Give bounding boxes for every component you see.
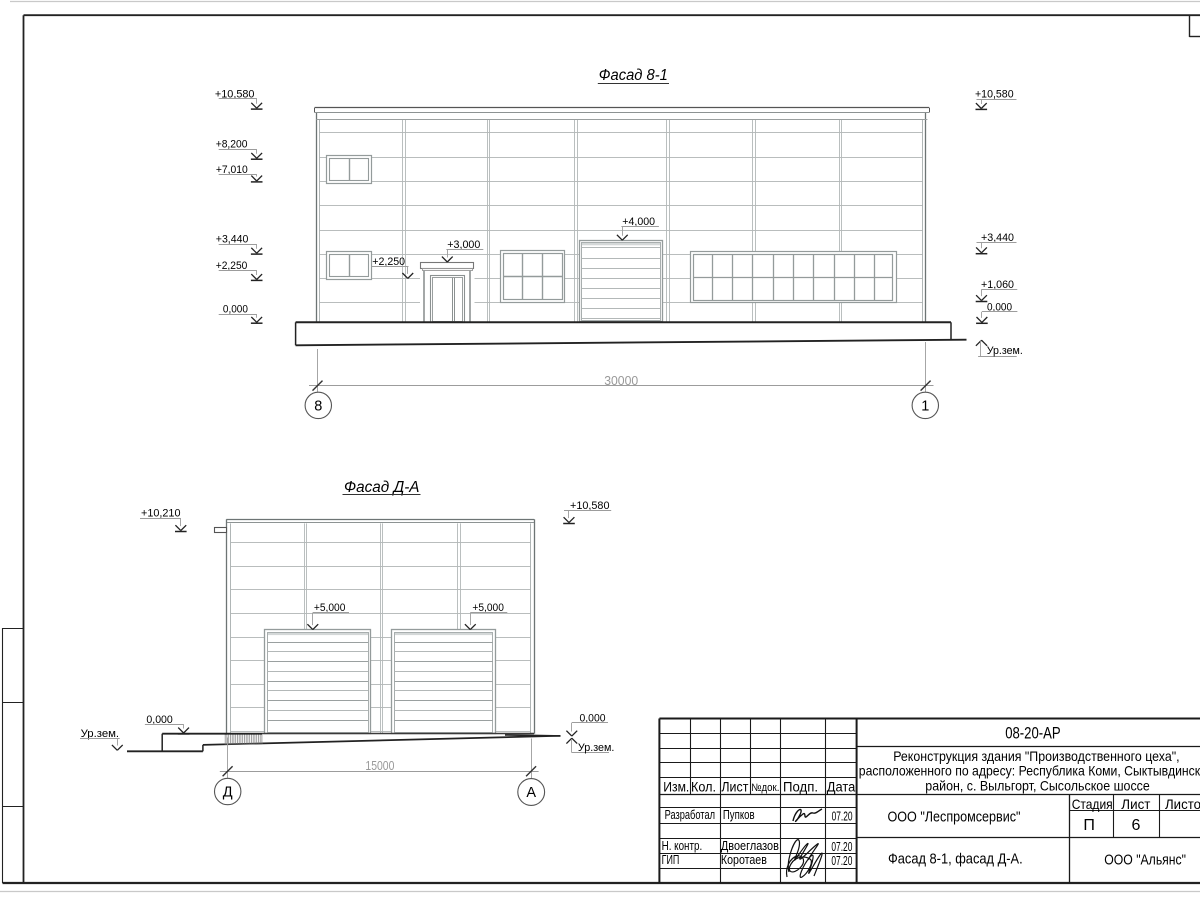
svg-text:+3,440: +3,440: [216, 234, 249, 246]
svg-text:расположенного по адресу: Респ: расположенного по адресу: Республика Ком…: [859, 763, 1200, 779]
svg-text:Стадия: Стадия: [1072, 796, 1113, 812]
svg-text:ГИП: ГИП: [662, 852, 680, 867]
svg-text:П: П: [1083, 817, 1095, 834]
svg-text:15000: 15000: [365, 759, 394, 773]
svg-text:0,000: 0,000: [223, 304, 248, 316]
svg-text:Лист: Лист: [721, 780, 748, 795]
svg-text:07.20: 07.20: [832, 808, 853, 823]
svg-text:+8,200: +8,200: [216, 139, 248, 151]
svg-text:Ур.зем.: Ур.зем.: [987, 345, 1023, 357]
svg-text:Реконструкция здания "Производ: Реконструкция здания "Производственного …: [893, 748, 1179, 764]
svg-text:1: 1: [921, 398, 929, 414]
svg-text:08-20-АР: 08-20-АР: [1005, 724, 1060, 742]
svg-text:Н. контр.: Н. контр.: [662, 838, 703, 853]
svg-text:Дата: Дата: [827, 780, 856, 795]
svg-text:Листов: Листов: [1165, 796, 1200, 812]
svg-text:Изм.: Изм.: [663, 780, 689, 795]
svg-text:07.20: 07.20: [831, 839, 852, 854]
svg-text:Пупков: Пупков: [723, 807, 755, 822]
svg-text:Ур.зем.: Ур.зем.: [81, 728, 119, 740]
svg-text:Разработал: Разработал: [665, 807, 715, 822]
svg-text:Лист: Лист: [1121, 796, 1151, 812]
svg-text:30000: 30000: [604, 374, 638, 388]
svg-text:Фасад Д-А: Фасад Д-А: [344, 479, 420, 496]
svg-text:Двоеглазов: Двоеглазов: [721, 838, 779, 853]
svg-text:Кол.: Кол.: [691, 780, 716, 795]
svg-text:Фасад 8-1: Фасад 8-1: [599, 67, 668, 84]
svg-text:ООО "Леспромсервис": ООО "Леспромсервис": [888, 810, 1021, 826]
svg-text:Д: Д: [223, 785, 233, 801]
svg-text:А: А: [526, 785, 536, 801]
svg-text:Подп.: Подп.: [783, 780, 818, 795]
svg-text:№док.: №док.: [751, 782, 779, 794]
svg-text:Фасад 8-1, фасад Д-А.: Фасад 8-1, фасад Д-А.: [888, 850, 1023, 867]
svg-text:+10,210: +10,210: [141, 508, 181, 520]
svg-text:6: 6: [1132, 817, 1141, 834]
svg-text:Коротаев: Коротаев: [721, 852, 767, 867]
svg-text:район, с. Выльгорт, Сысольское: район, с. Выльгорт, Сысольское шоссе: [925, 777, 1150, 793]
svg-text:ООО "Альянс": ООО "Альянс": [1104, 851, 1186, 868]
svg-text:+10,580: +10,580: [975, 89, 1014, 101]
svg-text:07.20: 07.20: [831, 853, 852, 868]
svg-text:Ур.зем.: Ур.зем.: [578, 742, 615, 754]
svg-text:8: 8: [314, 398, 322, 414]
